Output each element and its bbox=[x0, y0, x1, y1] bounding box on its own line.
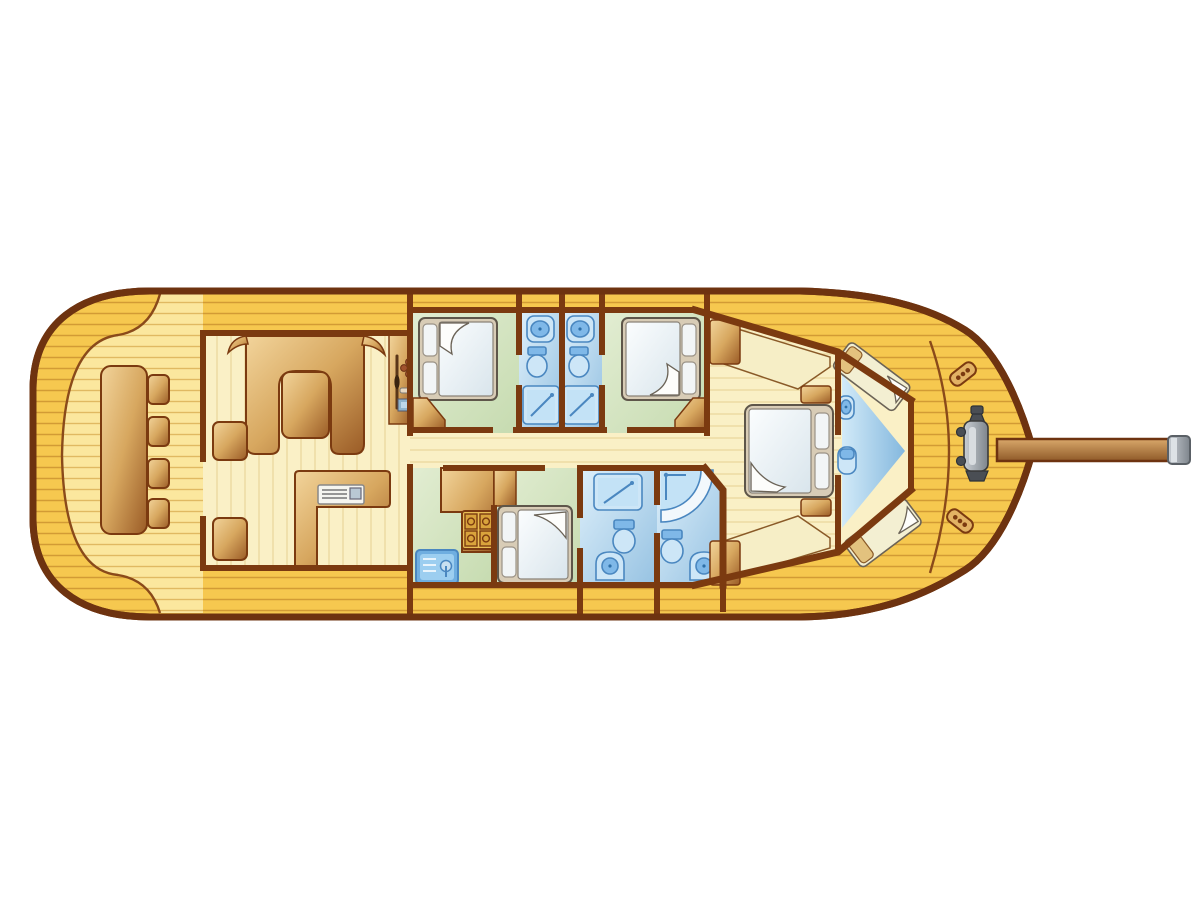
washbasin bbox=[596, 552, 624, 580]
pillow bbox=[682, 324, 696, 356]
cockpit-table bbox=[101, 366, 147, 534]
shower-tray bbox=[523, 386, 559, 424]
wall-master-bow-b bbox=[835, 475, 841, 552]
wall-bath2-fwd-a bbox=[599, 310, 605, 355]
pillow bbox=[815, 453, 829, 489]
companionway-step-lower bbox=[213, 518, 247, 560]
counter-appliance bbox=[318, 485, 364, 504]
bowsprit-pole bbox=[997, 439, 1174, 461]
wall-salon-fwd-upper bbox=[407, 307, 413, 436]
cockpit-stool-1 bbox=[148, 375, 169, 404]
cockpit-stool-4 bbox=[148, 499, 169, 528]
pillow bbox=[682, 362, 696, 394]
wall-cabin-master bbox=[704, 310, 710, 436]
wall-stub bbox=[704, 292, 710, 310]
deck-plan-drawing bbox=[0, 0, 1200, 900]
cockpit-stool-2 bbox=[148, 417, 169, 446]
pillow bbox=[502, 547, 516, 577]
toilet bbox=[838, 447, 856, 474]
nightstand-top bbox=[801, 386, 831, 403]
double-bed bbox=[498, 506, 572, 583]
wall-bow-cabin-fwd bbox=[908, 398, 914, 492]
toilet bbox=[569, 347, 589, 377]
wall-stub bbox=[654, 586, 660, 614]
wall-salon-aft-lower bbox=[200, 516, 206, 571]
boat-floor-plan bbox=[0, 0, 1200, 900]
steering-wheel-hub bbox=[394, 375, 399, 389]
pillow bbox=[423, 324, 437, 356]
double-bed bbox=[419, 318, 497, 400]
wall-stub bbox=[407, 586, 413, 615]
wall-salon-front bbox=[200, 330, 413, 336]
wall-bath1-aft-b bbox=[516, 385, 522, 433]
shower-tray bbox=[594, 474, 642, 510]
windlass-drum-highlight bbox=[969, 427, 976, 465]
pillow bbox=[423, 362, 437, 394]
wall-bath-divider bbox=[559, 310, 565, 433]
companionway-step-upper bbox=[213, 422, 247, 460]
pillow bbox=[815, 413, 829, 449]
wall-cabin-bath3-a bbox=[577, 468, 583, 518]
wall-cabin-starboard-back bbox=[627, 427, 707, 433]
toilet bbox=[661, 530, 683, 563]
stove bbox=[462, 511, 494, 549]
nightstand-bottom bbox=[801, 499, 831, 516]
wall-salon-fwd-lower bbox=[407, 464, 413, 588]
wall-lower-front-2 bbox=[577, 465, 705, 471]
salon-table bbox=[282, 372, 329, 438]
wall-cabin-bath3-b bbox=[577, 548, 583, 585]
wall-cabins-front bbox=[407, 307, 698, 313]
wall-bath1-aft-a bbox=[516, 310, 522, 355]
wall-salon-aft-upper bbox=[200, 330, 206, 462]
cockpit-stool-3 bbox=[148, 459, 169, 488]
wall-salon-back bbox=[200, 565, 413, 571]
wardrobe bbox=[494, 468, 516, 506]
toilet bbox=[527, 347, 547, 377]
wall-lower-front-1 bbox=[443, 465, 545, 471]
bowsprit-cap-band bbox=[1171, 438, 1177, 462]
galley-sink bbox=[416, 550, 458, 584]
wall-stub bbox=[577, 586, 583, 615]
wall-master-bow-a bbox=[835, 352, 841, 435]
shower-tray bbox=[563, 386, 599, 424]
wall-cabin-port-back bbox=[410, 427, 493, 433]
windlass-bolt bbox=[957, 457, 966, 466]
wall-bath3-bath4-a bbox=[654, 468, 660, 505]
double-bed bbox=[745, 405, 833, 497]
windlass-bolt bbox=[957, 428, 966, 437]
wall-bath2-fwd-b bbox=[599, 385, 605, 433]
toilet bbox=[613, 520, 635, 553]
gauge-icon bbox=[401, 365, 408, 372]
double-bed bbox=[622, 318, 700, 400]
wall-galley-cabin bbox=[491, 505, 497, 585]
wall-bath3-bath4-b bbox=[654, 533, 660, 585]
bowsprit bbox=[997, 436, 1190, 464]
pillow bbox=[502, 512, 516, 542]
cabinet-top bbox=[710, 320, 740, 364]
